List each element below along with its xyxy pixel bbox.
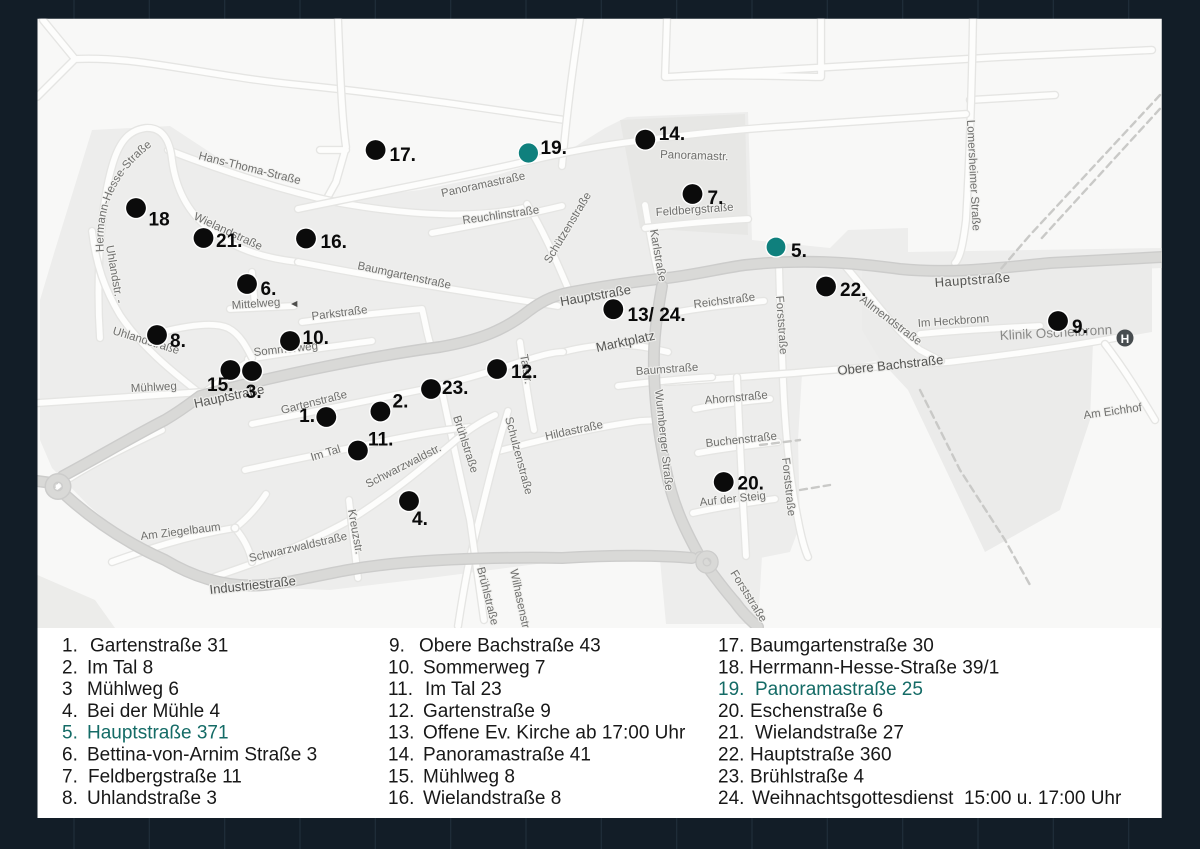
svg-text:18.: 18. bbox=[718, 657, 744, 678]
svg-text:14.: 14. bbox=[659, 124, 685, 145]
svg-text:16.: 16. bbox=[321, 232, 347, 253]
svg-text:24.: 24. bbox=[718, 788, 744, 809]
svg-text:Weihnachtsgottesdienst 15:00: Weihnachtsgottesdienst 15:00 u. 17:00 Uh… bbox=[752, 788, 1122, 809]
svg-text:10.: 10. bbox=[388, 657, 414, 678]
svg-text:1.: 1. bbox=[299, 406, 315, 427]
svg-text:3.: 3. bbox=[246, 382, 262, 403]
svg-text:22.: 22. bbox=[718, 745, 744, 766]
svg-text:2.: 2. bbox=[62, 657, 78, 678]
svg-text:Panoramastraße 25: Panoramastraße 25 bbox=[755, 679, 923, 700]
svg-text:7.: 7. bbox=[62, 766, 78, 787]
svg-text:Gartenstraße 31: Gartenstraße 31 bbox=[90, 636, 228, 657]
svg-text:13.: 13. bbox=[388, 723, 414, 744]
svg-text:15.: 15. bbox=[388, 766, 414, 787]
svg-text:5.: 5. bbox=[791, 241, 807, 262]
svg-text:Wielandstraße 27: Wielandstraße 27 bbox=[755, 723, 904, 744]
svg-text:18: 18 bbox=[149, 210, 170, 231]
svg-text:12.: 12. bbox=[511, 362, 537, 383]
svg-text:12.: 12. bbox=[388, 701, 414, 722]
svg-text:21.: 21. bbox=[216, 231, 242, 252]
svg-text:Hauptstraße 360: Hauptstraße 360 bbox=[750, 745, 892, 766]
svg-text:9.: 9. bbox=[389, 636, 405, 657]
svg-text:Uhlandstraße 3: Uhlandstraße 3 bbox=[87, 788, 217, 809]
svg-text:11.: 11. bbox=[368, 430, 393, 451]
svg-text:1.: 1. bbox=[62, 636, 78, 657]
svg-text:9.: 9. bbox=[1072, 317, 1088, 338]
svg-text:23.: 23. bbox=[442, 378, 468, 399]
svg-text:16.: 16. bbox=[388, 788, 414, 809]
svg-text:Bei der Mühle 4: Bei der Mühle 4 bbox=[87, 701, 221, 722]
svg-text:20.: 20. bbox=[738, 474, 764, 495]
svg-text:4.: 4. bbox=[62, 701, 78, 722]
svg-text:Feldbergstraße 11: Feldbergstraße 11 bbox=[88, 766, 242, 787]
svg-text:17.: 17. bbox=[390, 145, 416, 166]
svg-text:Sommerweg 7: Sommerweg 7 bbox=[423, 657, 546, 678]
svg-text:13/ 24.: 13/ 24. bbox=[628, 305, 686, 326]
svg-text:21.: 21. bbox=[718, 723, 744, 744]
svg-text:Brühlstraße 4: Brühlstraße 4 bbox=[750, 766, 864, 787]
svg-text:Eschenstraße 6: Eschenstraße 6 bbox=[750, 701, 883, 722]
svg-text:20.: 20. bbox=[718, 701, 744, 722]
svg-text:2.: 2. bbox=[393, 392, 409, 413]
svg-text:Mühlweg 8: Mühlweg 8 bbox=[423, 766, 515, 787]
svg-text:22.: 22. bbox=[840, 280, 866, 301]
svg-text:17.: 17. bbox=[718, 636, 744, 657]
svg-text:3: 3 bbox=[62, 679, 73, 700]
svg-text:Herrmann-Hesse-Straße 39/1: Herrmann-Hesse-Straße 39/1 bbox=[749, 657, 999, 678]
svg-text:Baumgartenstraße 30: Baumgartenstraße 30 bbox=[750, 636, 934, 657]
svg-text:H: H bbox=[1121, 332, 1130, 346]
svg-text:Gartenstraße 9: Gartenstraße 9 bbox=[423, 701, 551, 722]
svg-text:◄: ◄ bbox=[289, 298, 299, 310]
svg-text:Wielandstraße 8: Wielandstraße 8 bbox=[423, 788, 561, 809]
svg-text:Obere Bachstraße 43: Obere Bachstraße 43 bbox=[419, 636, 601, 657]
svg-text:5.: 5. bbox=[62, 723, 78, 744]
svg-text:Mühlweg: Mühlweg bbox=[131, 381, 178, 395]
svg-text:4.: 4. bbox=[412, 509, 428, 530]
svg-text:10.: 10. bbox=[303, 328, 329, 349]
svg-text:Hauptstraße 371: Hauptstraße 371 bbox=[87, 723, 229, 744]
svg-text:8.: 8. bbox=[62, 788, 78, 809]
svg-text:Mühlweg 6: Mühlweg 6 bbox=[87, 679, 179, 700]
svg-text:23.: 23. bbox=[718, 766, 744, 787]
svg-text:Im Tal 8: Im Tal 8 bbox=[87, 657, 153, 678]
svg-text:Panoramastraße 41: Panoramastraße 41 bbox=[423, 745, 591, 766]
svg-text:19.: 19. bbox=[541, 138, 567, 159]
svg-text:6.: 6. bbox=[62, 745, 78, 766]
svg-text:19.: 19. bbox=[718, 679, 744, 700]
svg-text:8.: 8. bbox=[170, 331, 186, 352]
svg-text:Im Tal 23: Im Tal 23 bbox=[425, 679, 502, 700]
svg-text:7.: 7. bbox=[708, 188, 724, 209]
svg-text:15.: 15. bbox=[207, 375, 233, 396]
svg-text:Bettina-von-Arnim Straße 3: Bettina-von-Arnim Straße 3 bbox=[87, 745, 317, 766]
svg-text:Offene Ev. Kirche ab 17:00 Uhr: Offene Ev. Kirche ab 17:00 Uhr bbox=[423, 723, 686, 744]
svg-text:14.: 14. bbox=[388, 745, 414, 766]
svg-text:6.: 6. bbox=[261, 279, 277, 300]
svg-text:11.: 11. bbox=[388, 679, 413, 700]
svg-text:Panoramastr.: Panoramastr. bbox=[660, 149, 729, 163]
